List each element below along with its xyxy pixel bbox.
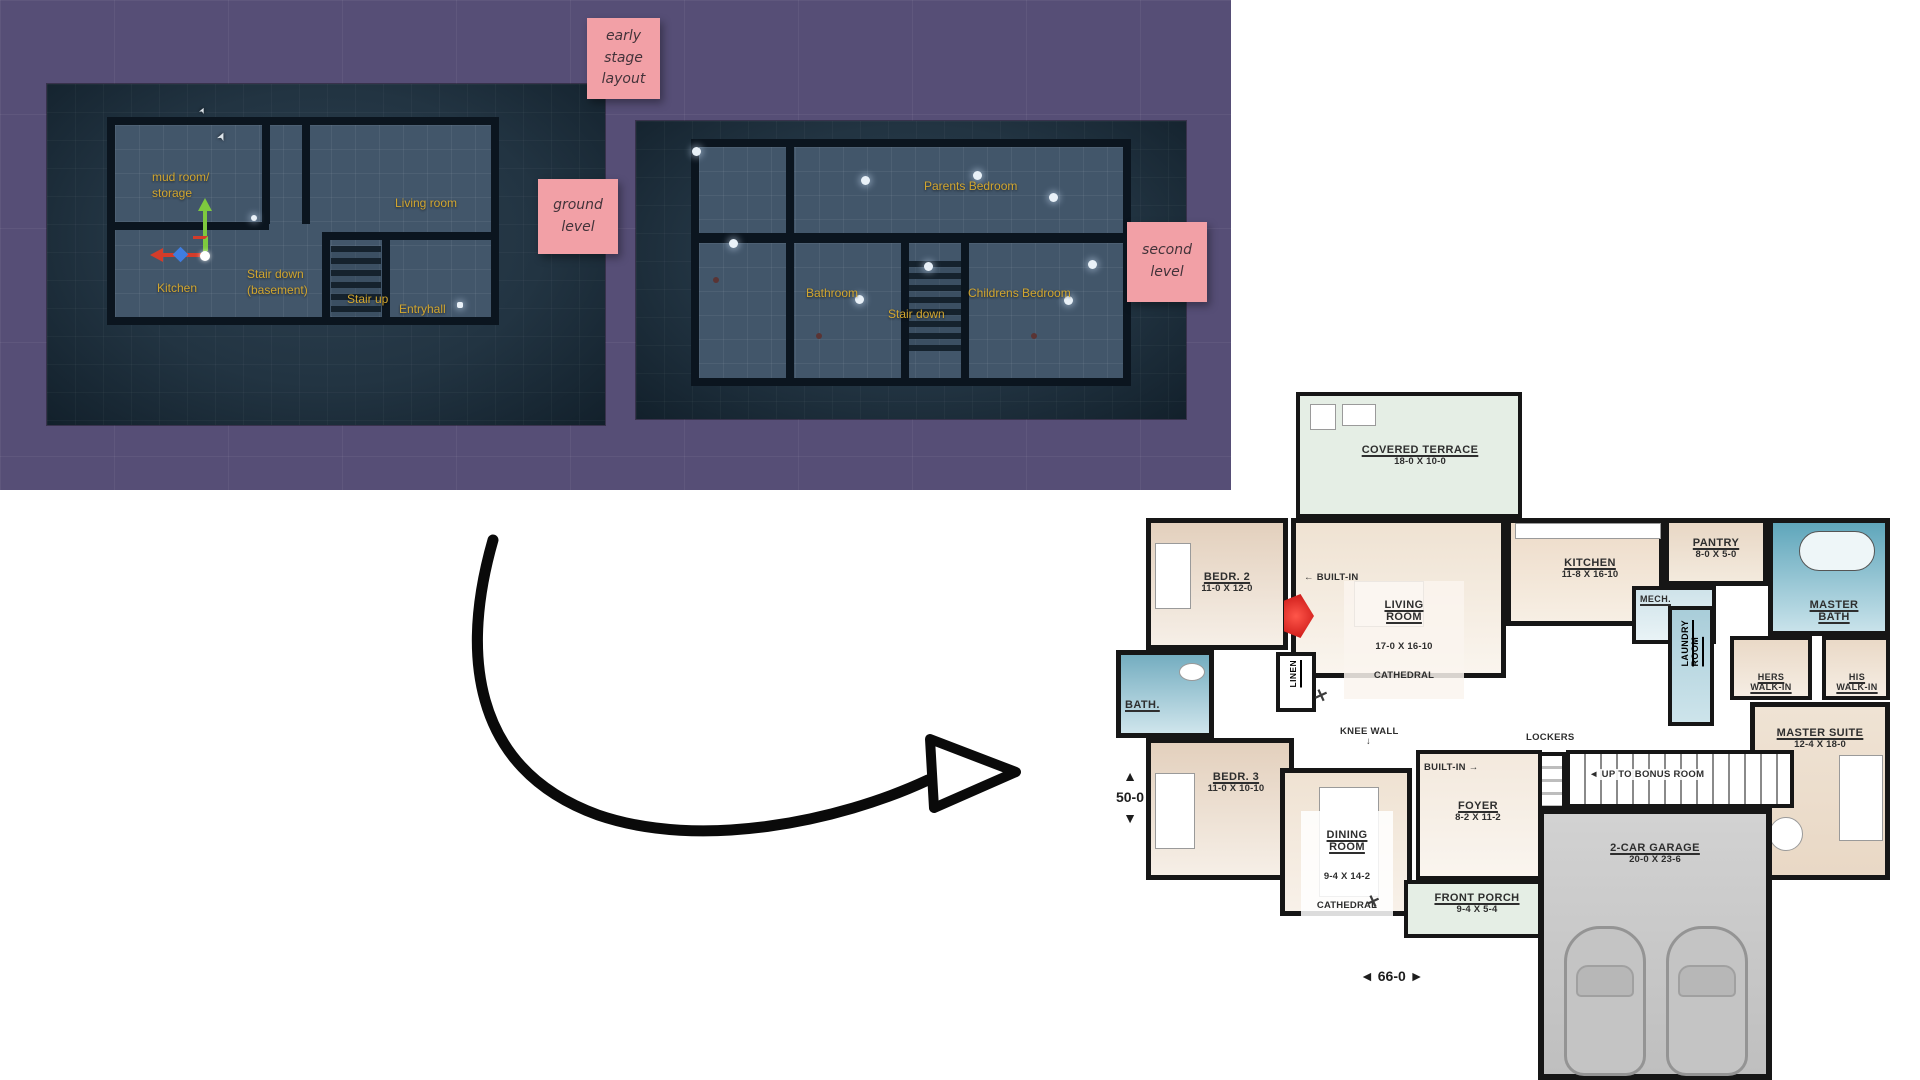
room-name: DINING ROOM <box>1301 829 1393 853</box>
room-bedroom-2: BEDR. 2 11-0 X 12-0 <box>1146 518 1288 650</box>
room-bath: BATH. <box>1116 650 1214 738</box>
terrace-furniture <box>1342 404 1376 426</box>
arrow-left-icon: ◄ <box>1360 968 1374 984</box>
room-name: BEDR. 2 <box>1177 571 1277 583</box>
room-dim: 18-0 X 10-0 <box>1340 456 1500 467</box>
room-dim: 8-0 X 5-0 <box>1676 549 1756 560</box>
room-name: BATH. <box>1125 699 1185 711</box>
room-covered-terrace: COVERED TERRACE 18-0 X 10-0 <box>1296 392 1522 518</box>
dimension-depth: ▲ 50-0 ▼ <box>1108 766 1152 829</box>
arrow-right-icon: ► <box>1410 968 1424 984</box>
annotation-lockers: LOCKERS <box>1526 732 1575 743</box>
room-name: MASTER BATH <box>1789 599 1879 623</box>
kitchen-counter <box>1515 523 1661 539</box>
room-dim: 20-0 X 23-6 <box>1575 854 1735 865</box>
sink <box>1179 663 1205 681</box>
room-name: BEDR. 3 <box>1181 771 1291 783</box>
arrow-down-icon: ↓ <box>1366 736 1371 747</box>
room-name: LINEN <box>1288 660 1298 688</box>
room-bedroom-3: BEDR. 3 11-0 X 10-10 <box>1146 738 1294 880</box>
room-name: MASTER SUITE <box>1760 727 1880 739</box>
arrow-head-icon <box>930 739 1016 808</box>
car-illustration <box>1666 926 1748 1076</box>
room-name: FOYER <box>1428 800 1528 812</box>
room-name: MECH. <box>1640 594 1688 604</box>
room-front-porch: FRONT PORCH 9-4 X 5-4 <box>1404 880 1546 938</box>
bed <box>1839 755 1883 841</box>
room-dim: 11-0 X 10-10 <box>1181 783 1291 794</box>
room-name: KITCHEN <box>1535 557 1645 569</box>
arrow-up-icon: ▲ <box>1108 766 1152 787</box>
terrace-furniture <box>1310 404 1336 430</box>
dimension-width: ◄ 66-0 ► <box>1360 968 1424 984</box>
table <box>1769 817 1803 851</box>
room-name: HERS WALK-IN <box>1738 672 1804 692</box>
room-dim: 11-0 X 12-0 <box>1177 583 1277 594</box>
room-name: LIVING ROOM <box>1344 599 1464 623</box>
room-living-room: LIVING ROOM 17-0 X 16-10 CATHEDRAL <box>1291 518 1506 678</box>
arrow-left-icon: ← <box>1304 572 1314 583</box>
floor-plan-image[interactable]: COVERED TERRACE 18-0 X 10-0 BEDR. 2 11-0… <box>1108 380 1898 1080</box>
annotation-built-in-bottom: BUILT-IN → <box>1424 762 1479 773</box>
room-name: PANTRY <box>1676 537 1756 549</box>
annotation-built-in-top: ← BUILT-IN <box>1304 572 1359 583</box>
arrow-left-icon: ◄ <box>1589 769 1599 780</box>
room-laundry: LAUNDRY ROOM <box>1668 606 1714 726</box>
room-dim: 17-0 X 16-10 <box>1344 641 1464 652</box>
room-hers-walk-in: HERS WALK-IN <box>1730 636 1812 700</box>
room-name: 2-CAR GARAGE <box>1575 842 1735 854</box>
car-illustration <box>1564 926 1646 1076</box>
arrow-right-icon: → <box>1469 762 1479 773</box>
room-his-walk-in: HIS WALK-IN <box>1822 636 1890 700</box>
annotation-up-to-bonus: ◄ UP TO BONUS ROOM <box>1586 769 1707 780</box>
arrow-down-icon: ▼ <box>1108 808 1152 829</box>
room-name: FRONT PORCH <box>1419 892 1535 904</box>
room-name: HIS WALK-IN <box>1828 672 1886 692</box>
room-master-bath: MASTER BATH <box>1768 518 1890 636</box>
room-name: LAUNDRY ROOM <box>1680 620 1700 666</box>
room-dim: 11-8 X 16-10 <box>1535 569 1645 580</box>
room-dining: DINING ROOM 9-4 X 14-2 CATHEDRAL <box>1280 768 1412 916</box>
room-note: CATHEDRAL <box>1344 670 1464 681</box>
bathtub <box>1799 531 1875 571</box>
arrow-shaft <box>477 540 928 831</box>
room-dim: 12-4 X 18-0 <box>1760 739 1880 750</box>
room-dim: 9-4 X 14-2 <box>1301 871 1393 882</box>
room-name: COVERED TERRACE <box>1340 444 1500 456</box>
room-pantry: PANTRY 8-0 X 5-0 <box>1664 518 1768 586</box>
knee-wall-arrow: ↓ <box>1366 736 1371 747</box>
room-garage: 2-CAR GARAGE 20-0 X 23-6 <box>1538 808 1772 1080</box>
room-dim: 9-4 X 5-4 <box>1419 904 1535 915</box>
room-dim: 8-2 X 11-2 <box>1428 812 1528 823</box>
